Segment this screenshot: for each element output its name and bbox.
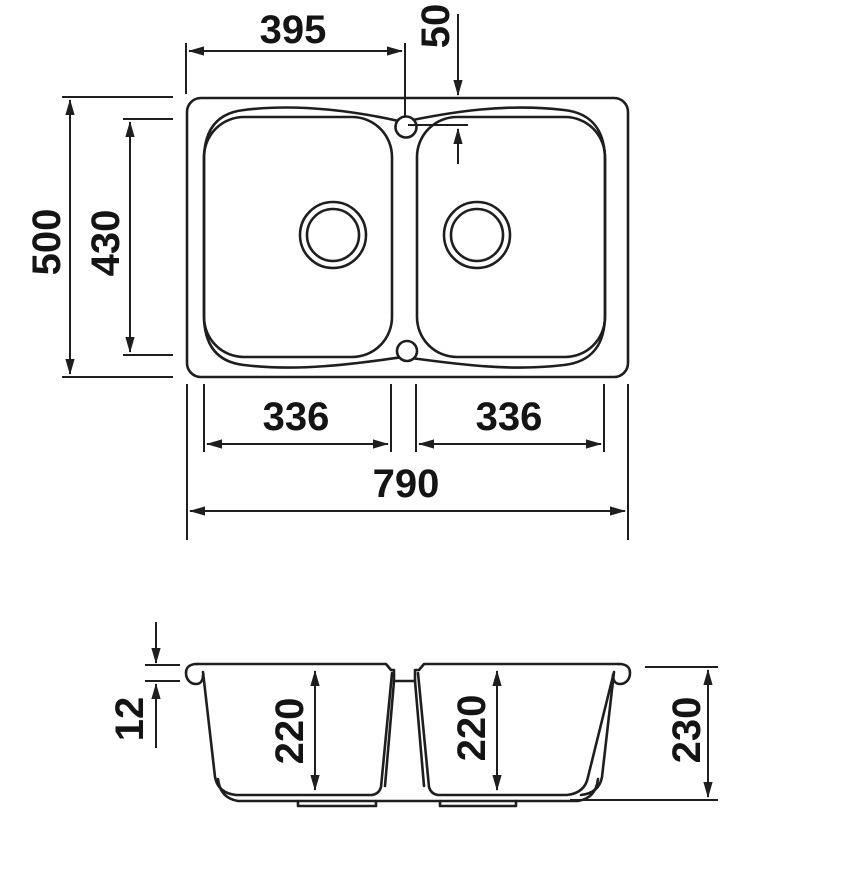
dim-430-group: 430 — [84, 119, 173, 355]
dim-50-group: 50 — [408, 4, 468, 164]
dim-label-overall-width: 790 — [373, 462, 440, 506]
dim-336-left-group: 336 — [204, 384, 391, 452]
tap-hole-outline — [396, 117, 417, 138]
plan-view: 395 50 500 430 336 — [25, 4, 628, 540]
section-deck-line — [197, 664, 619, 681]
left-drain-outline — [300, 202, 366, 268]
dim-label-bowl-depth-right: 220 — [450, 695, 494, 762]
dim-label-bowl-depth-left: 220 — [268, 698, 312, 765]
dim-220-left-group: 220 — [268, 671, 315, 790]
sink-ledge-outline — [204, 108, 605, 368]
dim-label-bowl-width-right: 336 — [476, 395, 543, 439]
dim-336-right-group: 336 — [416, 384, 604, 452]
dim-230-group: 230 — [570, 667, 718, 800]
dim-label-edge-thickness: 12 — [108, 697, 152, 742]
sink-technical-drawing: 395 50 500 430 336 — [0, 0, 855, 887]
section-left-lip — [186, 664, 203, 684]
section-view: 12 220 220 230 — [108, 622, 718, 806]
section-right-lip — [613, 664, 630, 684]
dim-label-tap-offset: 50 — [414, 4, 458, 49]
section-right-bowl-profile — [418, 672, 614, 795]
sink-rim-outline — [187, 98, 628, 377]
dim-220-right-group: 220 — [450, 671, 497, 790]
dim-label-overall-height: 230 — [665, 697, 709, 764]
right-drain-outline — [444, 202, 510, 268]
dim-label-width-to-tap: 395 — [260, 8, 327, 52]
technical-drawing-page: 395 50 500 430 336 — [0, 0, 855, 887]
dim-label-bowl-width-left: 336 — [263, 395, 330, 439]
section-underside-line — [218, 779, 598, 801]
dim-12-group: 12 — [108, 622, 180, 748]
rear-hole-outline — [397, 341, 417, 361]
dim-label-inner-depth: 430 — [84, 210, 128, 277]
dim-395-group: 395 — [186, 8, 405, 116]
dim-label-overall-depth: 500 — [25, 209, 69, 276]
dim-790-group: 790 — [187, 384, 628, 540]
left-bowl-outline — [204, 117, 392, 357]
